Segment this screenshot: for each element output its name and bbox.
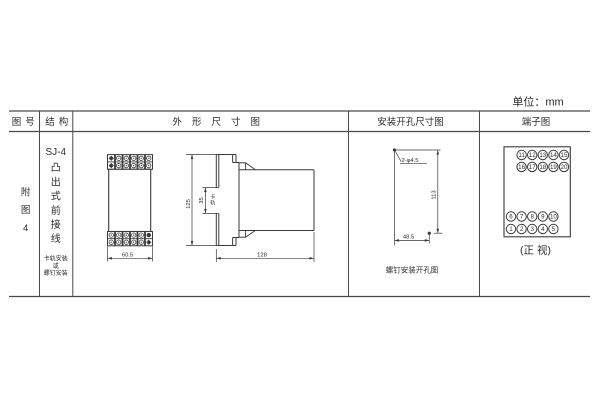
svg-text:7: 7 [520,214,524,221]
svg-text:5: 5 [552,226,556,233]
svg-text:卡: 卡 [210,194,215,201]
svg-text:单位：mm: 单位：mm [512,95,563,109]
svg-text:19: 19 [550,164,557,171]
svg-text:4: 4 [23,223,28,234]
svg-text:60.5: 60.5 [122,253,133,259]
svg-text:卡轨安装: 卡轨安装 [44,255,68,263]
svg-text:附: 附 [21,187,31,199]
svg-text:出: 出 [51,175,61,188]
svg-text:16: 16 [518,164,525,171]
svg-text:20: 20 [561,164,568,171]
svg-text:安装开孔尺寸图: 安装开孔尺寸图 [377,116,444,128]
svg-text:125: 125 [186,199,192,209]
svg-text:轨: 轨 [210,200,215,207]
svg-text:8: 8 [530,214,534,221]
svg-text:2-φ4.5: 2-φ4.5 [402,158,419,164]
svg-text:前: 前 [51,204,61,217]
svg-text:18: 18 [539,164,546,171]
svg-text:凸: 凸 [51,162,61,174]
svg-text:螺钉安装: 螺钉安装 [44,269,68,277]
svg-text:结构: 结构 [45,116,72,128]
svg-text:螺钉安装开孔图: 螺钉安装开孔图 [386,264,439,274]
svg-text:3: 3 [530,226,534,233]
svg-text:或: 或 [53,262,59,270]
svg-text:128: 128 [257,253,267,259]
svg-text:1: 1 [509,226,513,233]
svg-text:外形尺寸图: 外形尺寸图 [172,116,270,128]
svg-text:48.5: 48.5 [403,235,414,241]
svg-text:14: 14 [550,152,557,159]
svg-text:9: 9 [541,214,545,221]
svg-text:端子图: 端子图 [522,116,551,128]
svg-text:113: 113 [431,190,437,199]
svg-text:4: 4 [541,226,545,233]
svg-text:线: 线 [51,232,61,245]
svg-text:6: 6 [509,214,513,221]
svg-text:(正 视): (正 视) [520,244,551,257]
svg-text:2: 2 [520,226,524,233]
svg-text:12: 12 [529,152,536,159]
svg-text:接: 接 [51,218,61,231]
svg-text:SJ-4: SJ-4 [46,147,67,158]
svg-text:图: 图 [21,205,31,216]
svg-text:35: 35 [199,197,205,203]
svg-text:式: 式 [51,190,61,203]
svg-text:17: 17 [529,164,536,171]
svg-text:图号: 图号 [12,117,39,128]
svg-text:11: 11 [518,152,525,159]
svg-text:15: 15 [561,152,568,159]
svg-text:10: 10 [550,214,557,221]
svg-text:13: 13 [539,152,546,159]
